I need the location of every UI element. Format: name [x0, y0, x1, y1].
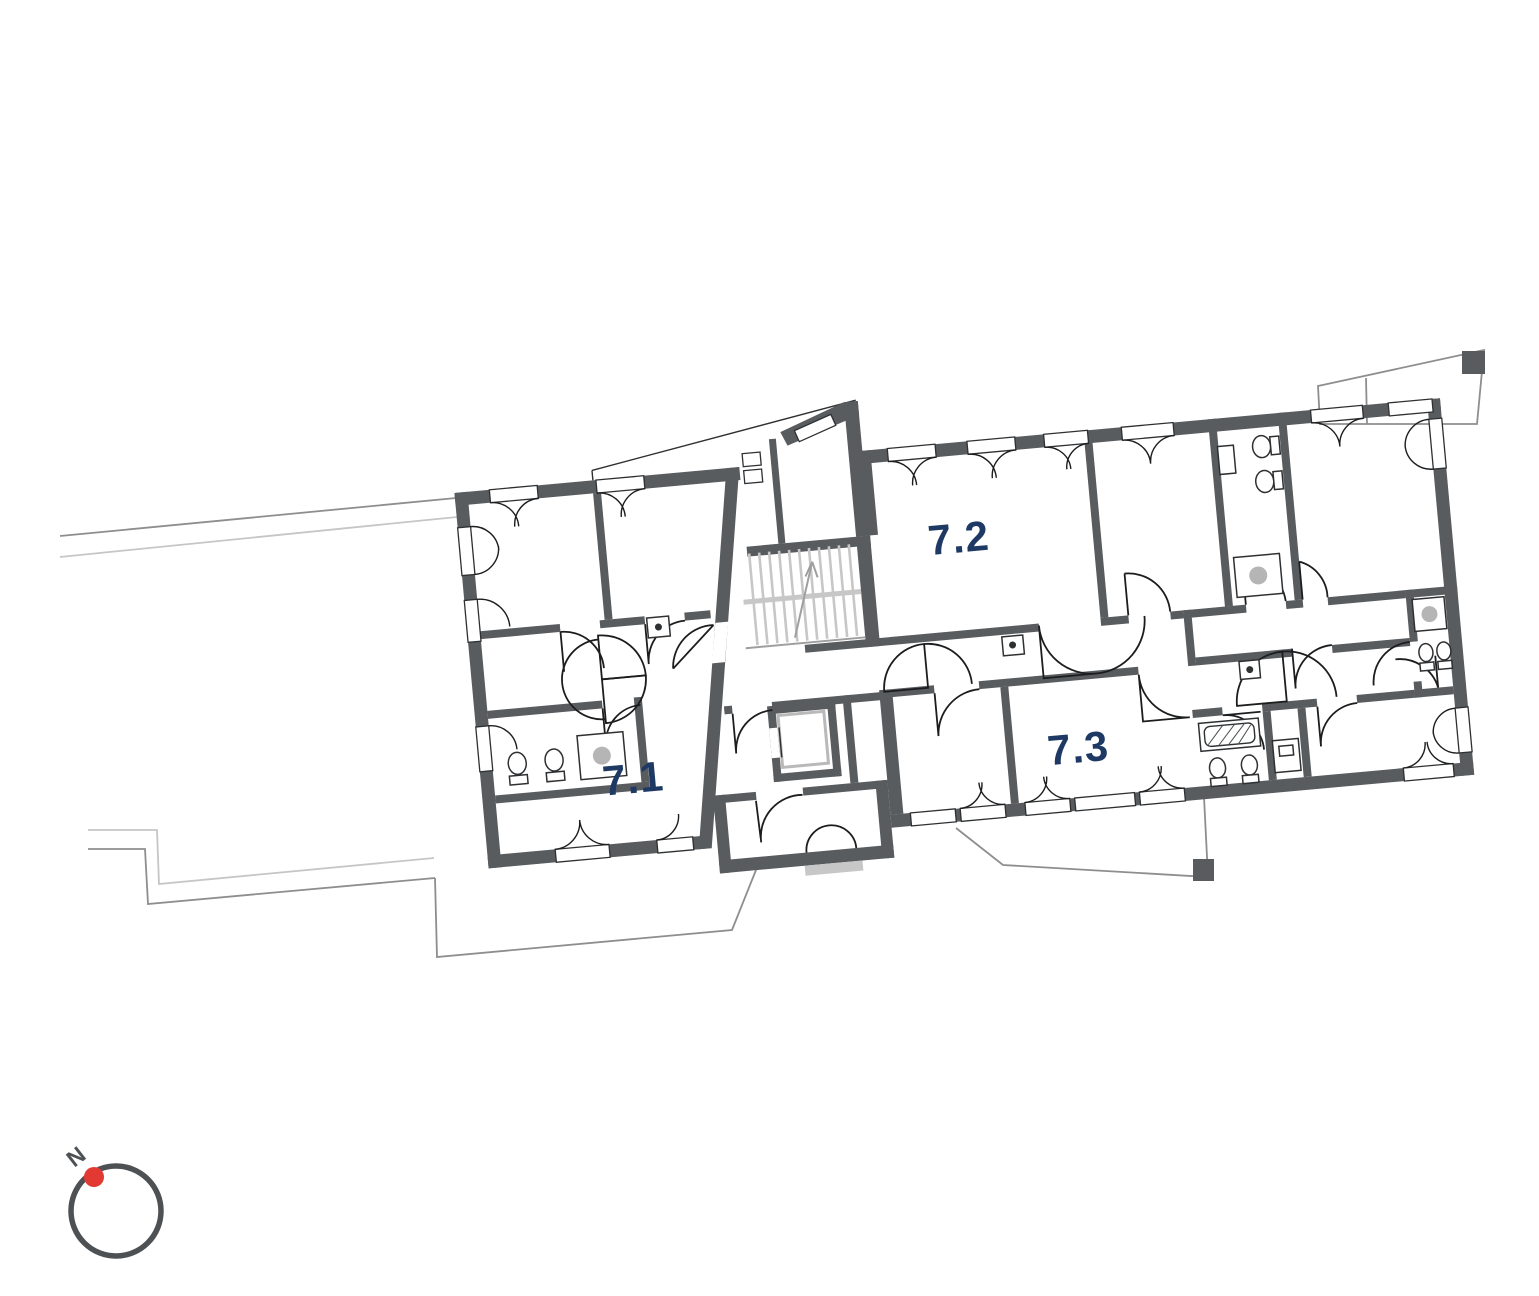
unit-label-7-2: 7.2 — [926, 512, 991, 564]
bathtub-icon — [1198, 718, 1260, 751]
toilet-icon — [507, 752, 527, 776]
site-line-upper-left — [60, 498, 456, 536]
terrace-step-block — [1193, 859, 1214, 881]
site-step-dark — [88, 849, 435, 904]
site-line-upper-left-2 — [60, 517, 457, 557]
panel-icons — [647, 563, 1261, 732]
unit-label-7-1: 7.1 — [600, 752, 665, 804]
balcony-corner-block — [1462, 351, 1485, 374]
compass-north-dot — [84, 1167, 104, 1187]
toilet-icon — [544, 748, 564, 772]
staircase — [737, 544, 865, 648]
bathroom-fixtures — [485, 420, 1466, 901]
compass: N — [61, 1141, 161, 1256]
elevator-car — [778, 711, 829, 767]
compass-north-label: N — [61, 1141, 90, 1172]
bidet-icon — [1241, 754, 1259, 775]
building: 7.1 7.2 7.3 — [449, 347, 1477, 904]
floor-plan-page: 7.1 7.2 7.3 N — [0, 0, 1539, 1296]
toilet-icon — [1209, 757, 1227, 778]
upper-structure-outline — [588, 400, 861, 480]
site-step-light — [88, 830, 434, 884]
toilet-icon — [1252, 435, 1272, 459]
bidet-icon — [1255, 470, 1275, 494]
floor-plan-canvas: 7.1 7.2 7.3 N — [0, 0, 1539, 1296]
toilet-icon — [1418, 643, 1434, 662]
water-heater-icon — [1217, 445, 1235, 474]
unit-labels: 7.1 7.2 7.3 — [581, 503, 1111, 815]
unit-label-7-3: 7.3 — [1045, 722, 1110, 774]
terrace-lower-left — [435, 860, 760, 957]
